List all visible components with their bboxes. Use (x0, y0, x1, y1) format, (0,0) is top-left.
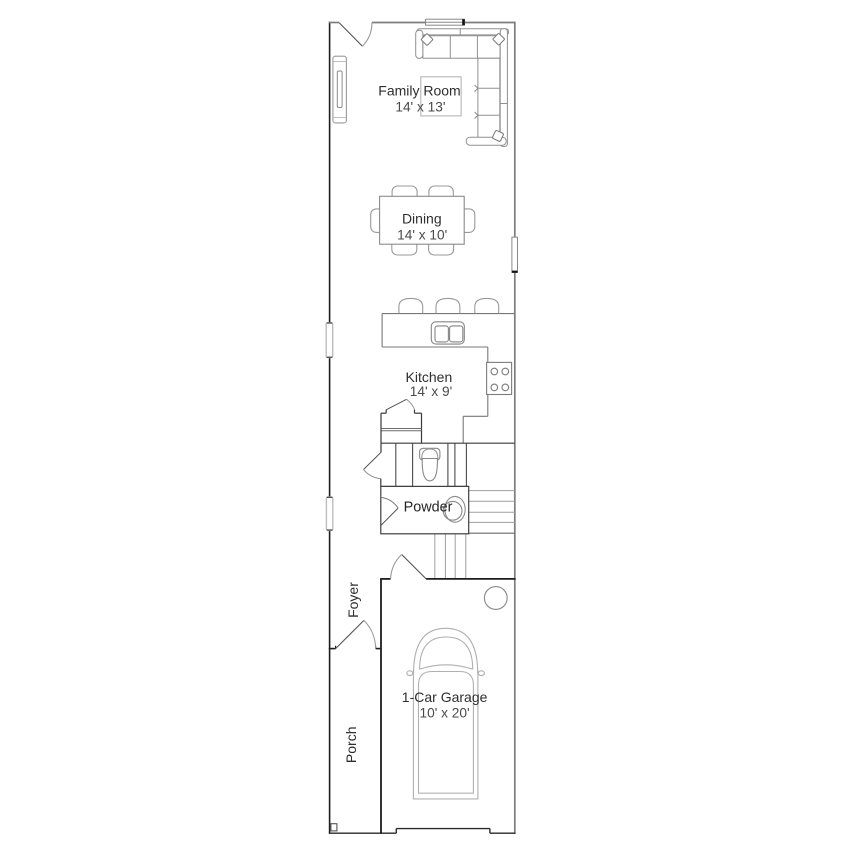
svg-text:14' x 13': 14' x 13' (395, 99, 445, 114)
svg-text:Kitchen: Kitchen (406, 369, 453, 385)
svg-text:Foyer: Foyer (345, 582, 361, 618)
svg-text:10' x 20': 10' x 20' (420, 706, 470, 721)
svg-text:Dining: Dining (402, 211, 442, 227)
svg-text:Powder: Powder (404, 499, 453, 515)
svg-text:14' x 9': 14' x 9' (410, 384, 453, 399)
svg-text:Porch: Porch (343, 727, 359, 764)
svg-text:1-Car Garage: 1-Car Garage (402, 689, 488, 705)
svg-text:14' x 10': 14' x 10' (397, 228, 447, 243)
svg-text:Family Room: Family Room (378, 83, 460, 99)
